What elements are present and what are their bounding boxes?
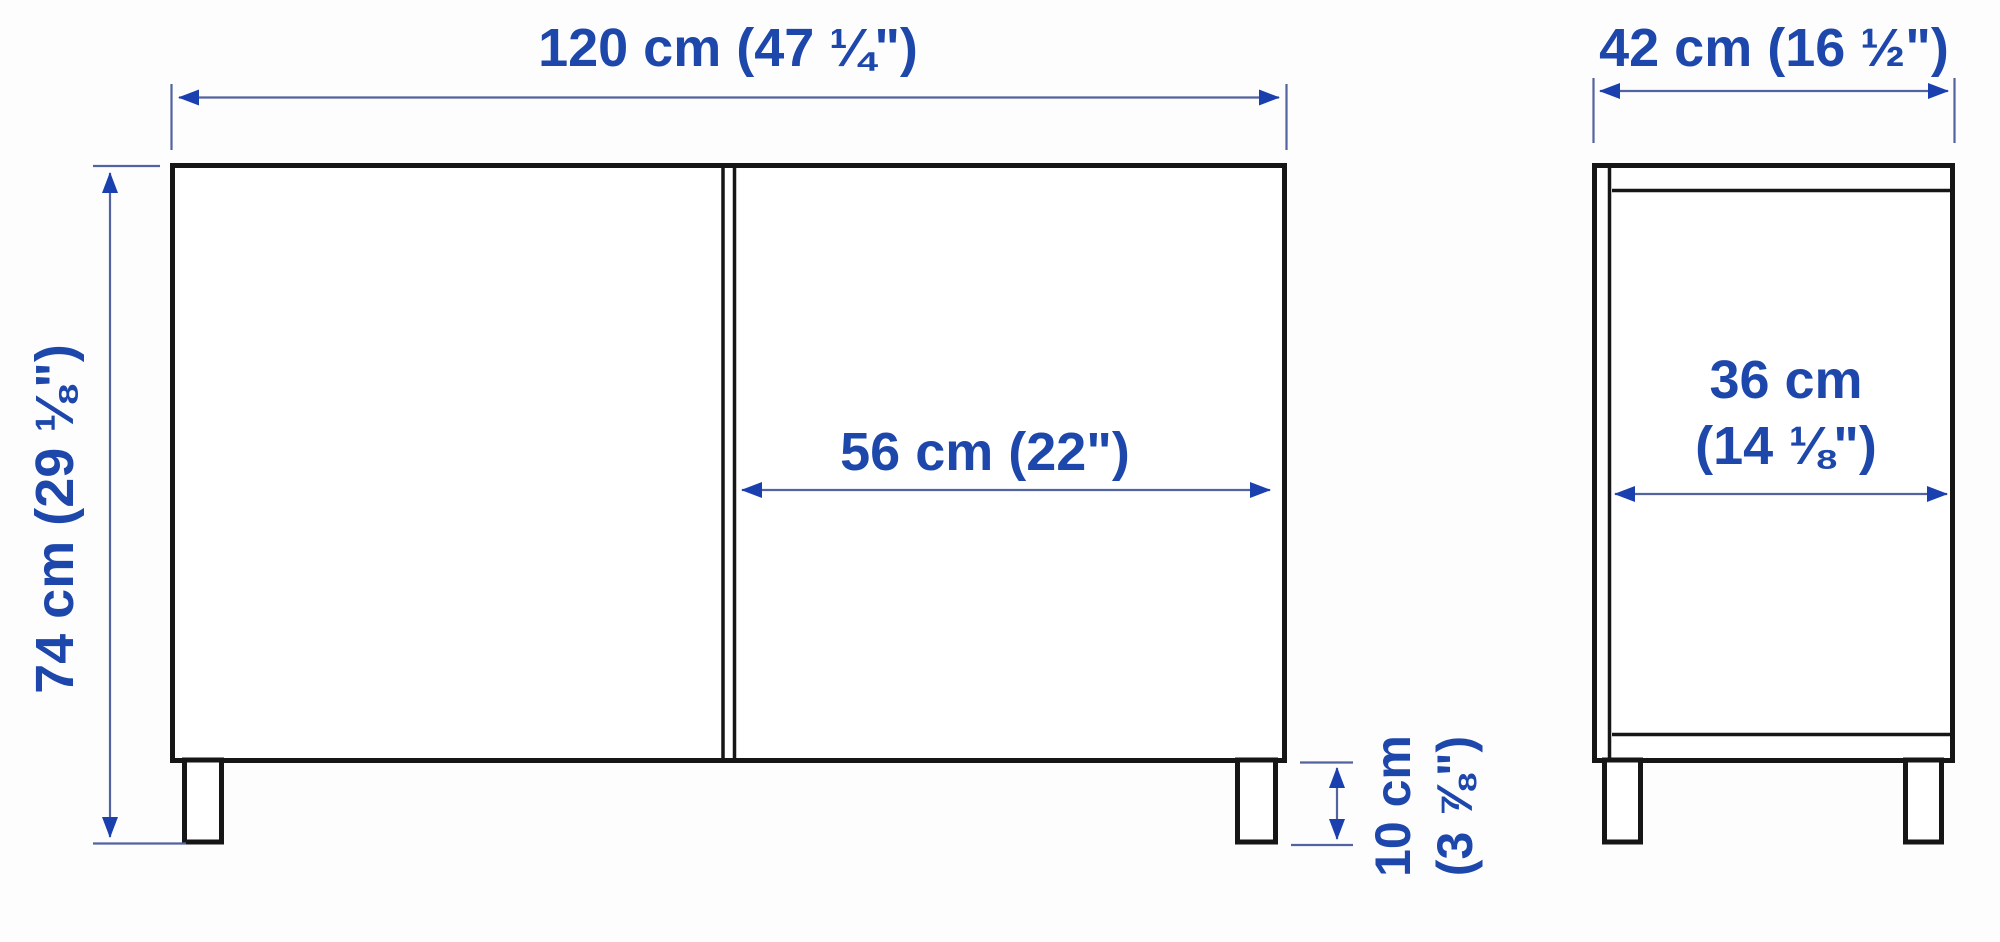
side-back-leg (1906, 760, 1942, 842)
dim-label-door-width: 56 cm (22") (735, 423, 1235, 481)
front-left-leg (185, 760, 222, 842)
front-view (173, 166, 1285, 843)
dim-label-overall-height: 74 cm (29 ⅛") (26, 269, 84, 769)
side-view (1595, 166, 1953, 843)
dim-label-leg-height: 10 cm (3 ⅞") (1362, 656, 1486, 942)
dim-label-interior-depth-inch: (14 ⅛") (1586, 413, 1986, 479)
dim-leg-height (1291, 763, 1353, 846)
dim-label-overall-depth: 42 cm (16 ½") (1524, 19, 2000, 77)
dim-label-interior-depth-cm: 36 cm (1586, 347, 1986, 413)
dim-overall-depth (1594, 78, 1955, 143)
dim-label-leg-height-inch: (3 ⅞") (1424, 656, 1486, 942)
dim-overall-width (172, 84, 1287, 150)
dim-label-overall-width: 120 cm (47 ¼") (378, 19, 1078, 77)
side-front-leg (1605, 760, 1641, 842)
front-right-leg (1238, 760, 1276, 842)
dimension-diagram: 120 cm (47 ¼") 42 cm (16 ½") 74 cm (29 ⅛… (0, 0, 2000, 942)
dim-label-interior-depth: 36 cm (14 ⅛") (1586, 347, 1986, 479)
dim-label-leg-height-cm: 10 cm (1362, 656, 1424, 942)
